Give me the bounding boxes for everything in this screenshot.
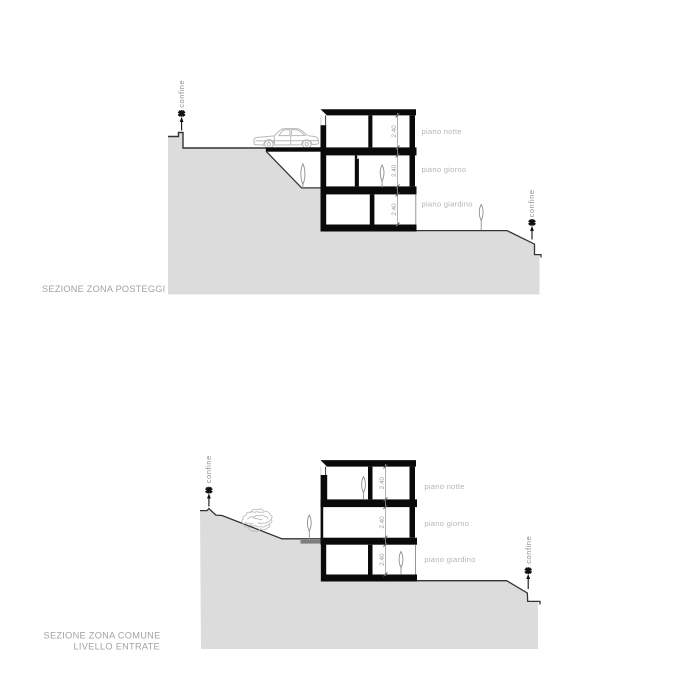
svg-text:2.40: 2.40 [391, 164, 398, 177]
svg-text:2.40: 2.40 [379, 553, 386, 566]
svg-text:piano notte: piano notte [424, 482, 464, 491]
svg-text:2.40: 2.40 [379, 476, 386, 489]
svg-text:confine: confine [524, 536, 533, 564]
svg-text:confine: confine [527, 189, 536, 217]
svg-text:piano giardino: piano giardino [422, 200, 473, 209]
svg-text:piano giorno: piano giorno [422, 165, 467, 174]
svg-text:SEZIONE ZONA POSTEGGI: SEZIONE ZONA POSTEGGI [42, 284, 165, 294]
svg-text:2.40: 2.40 [379, 516, 386, 529]
svg-text:piano giorno: piano giorno [424, 519, 469, 528]
svg-text:2.40: 2.40 [391, 125, 398, 138]
svg-text:LIVELLO ENTRATE: LIVELLO ENTRATE [73, 642, 160, 652]
svg-text:piano notte: piano notte [422, 127, 462, 136]
svg-text:confine: confine [177, 80, 186, 108]
svg-text:confine: confine [204, 455, 213, 483]
svg-text:SEZIONE ZONA COMUNE: SEZIONE ZONA COMUNE [44, 631, 161, 641]
svg-text:piano giardino: piano giardino [424, 555, 475, 564]
svg-text:2.40: 2.40 [391, 203, 398, 216]
